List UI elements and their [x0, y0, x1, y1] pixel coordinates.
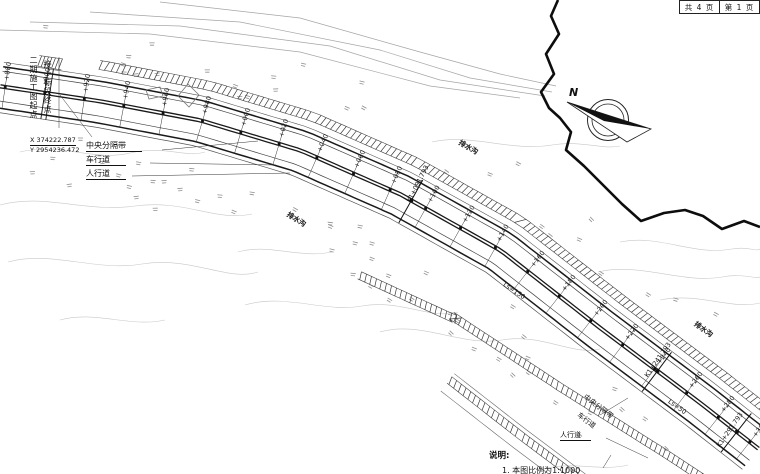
start-coordinate-x: X 374222.787: [30, 137, 76, 146]
start-coordinate-y: Y 2954236.472: [30, 147, 79, 154]
notes-line-1: 1. 本图比例为1:1000: [502, 467, 580, 474]
start-note-line1: 二期施工图起点: [29, 56, 37, 119]
north-label: N: [569, 87, 578, 98]
road-sidewalk-label: 人行道: [560, 432, 591, 441]
contour-lines: [0, 140, 760, 470]
north-arrow-icon: [567, 100, 651, 143]
current-page-cell: 第 1 页: [719, 1, 759, 13]
survey-boundary-line: [541, 0, 760, 229]
sheet-number-block: 共 4 页 第 1 页: [679, 0, 760, 14]
notes-title: 说明:: [489, 452, 509, 461]
plan-linework: [0, 0, 760, 474]
slope-hatch-bands: [38, 56, 760, 474]
cross-section-median-label: 中央分隔带: [86, 142, 142, 152]
cross-section-carriageway-label: 车行道: [86, 156, 126, 166]
total-pages-cell: 共 4 页: [680, 1, 719, 13]
vegetation-symbols: [30, 25, 719, 451]
cross-section-sidewalk-label: 人行道: [86, 170, 126, 180]
plan-drawing-sheet: 共 4 页 第 1 页 N 二期施工图起点 接一标段终点 X 374222.78…: [0, 0, 760, 474]
